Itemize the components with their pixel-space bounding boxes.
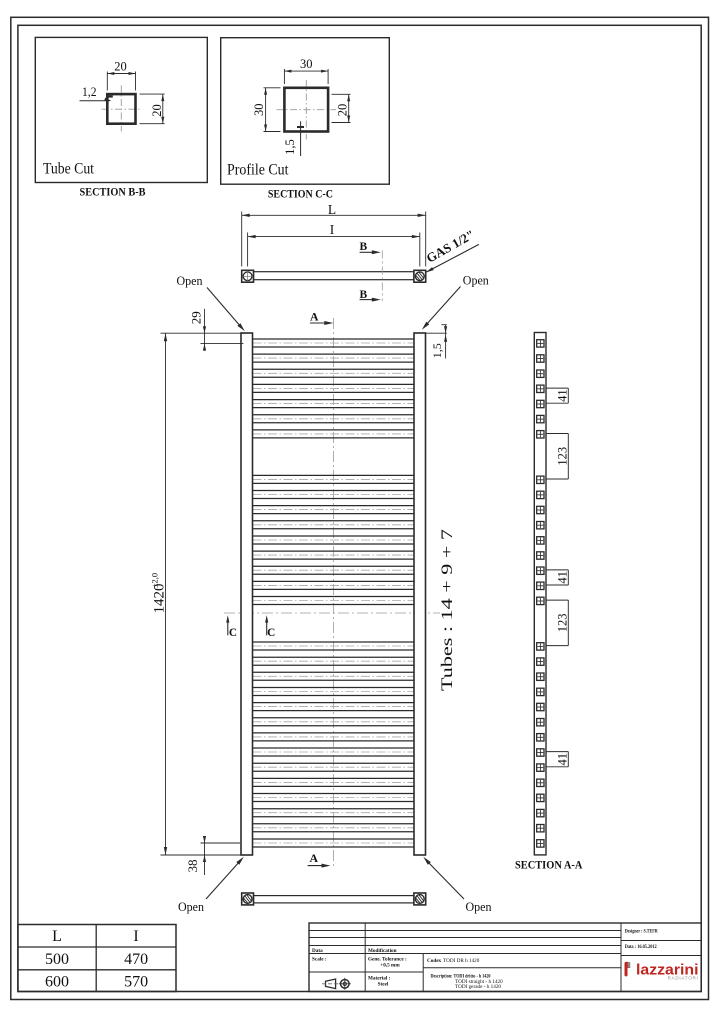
svg-text:A: A <box>310 309 319 323</box>
svg-text:Codex: Codex <box>427 958 442 964</box>
svg-text:I: I <box>330 222 335 237</box>
svg-text:RADIATORI: RADIATORI <box>668 975 699 980</box>
svg-text:41: 41 <box>555 753 569 766</box>
svg-text:1,2: 1,2 <box>82 85 97 99</box>
svg-text:Open: Open <box>178 899 204 914</box>
svg-text:20: 20 <box>114 60 127 74</box>
svg-text:570: 570 <box>124 973 148 990</box>
svg-text:29: 29 <box>189 311 204 324</box>
svg-text:500: 500 <box>45 951 69 968</box>
svg-text:30: 30 <box>252 103 266 116</box>
svg-text:Profile Cut: Profile Cut <box>227 162 289 179</box>
svg-text:20: 20 <box>336 104 350 117</box>
svg-text:SECTION B-B: SECTION B-B <box>80 187 146 199</box>
svg-text:Open: Open <box>177 273 203 288</box>
svg-text:SECTION A-A: SECTION A-A <box>515 858 583 872</box>
svg-text:C: C <box>267 627 275 639</box>
svg-text:Open: Open <box>466 899 492 914</box>
svg-text:30: 30 <box>300 57 313 71</box>
svg-text:41: 41 <box>555 571 569 584</box>
svg-text:470: 470 <box>124 951 148 968</box>
svg-text:123: 123 <box>556 614 570 633</box>
svg-text:L: L <box>328 202 336 217</box>
svg-text:38: 38 <box>185 860 200 873</box>
svg-text:+0,5 mm: +0,5 mm <box>380 963 400 969</box>
svg-text:SECTION C-C: SECTION C-C <box>268 189 333 201</box>
svg-text:L: L <box>52 928 62 945</box>
svg-text:Scale :: Scale : <box>312 957 327 963</box>
svg-text:Steel: Steel <box>378 982 389 988</box>
svg-text:Modification: Modification <box>368 948 397 954</box>
svg-text:123: 123 <box>555 447 569 466</box>
svg-text:Data : 16.05.2012: Data : 16.05.2012 <box>625 944 657 950</box>
svg-text:Data: Data <box>312 948 323 954</box>
svg-text:C: C <box>229 627 237 639</box>
svg-text:TODI gerade - h 1420: TODI gerade - h 1420 <box>455 984 501 990</box>
svg-text:600: 600 <box>45 973 69 990</box>
svg-text:1,5: 1,5 <box>430 343 444 358</box>
svg-text:I: I <box>133 928 138 945</box>
svg-text:Tube Cut: Tube Cut <box>43 161 95 178</box>
svg-text:20: 20 <box>150 104 164 117</box>
svg-text:1,5: 1,5 <box>283 139 297 155</box>
svg-text:±2,0: ±2,0 <box>150 573 160 588</box>
svg-text:Designer : S.TEFR: Designer : S.TEFR <box>625 929 658 935</box>
svg-text:TODI DR h 1420: TODI DR h 1420 <box>443 958 480 964</box>
svg-text:Open: Open <box>463 273 489 288</box>
svg-text:A: A <box>310 851 319 865</box>
svg-text:41: 41 <box>555 389 569 402</box>
svg-text:B: B <box>359 241 367 253</box>
svg-text:Tubes : 14 + 9 + 7: Tubes : 14 + 9 + 7 <box>439 529 456 691</box>
